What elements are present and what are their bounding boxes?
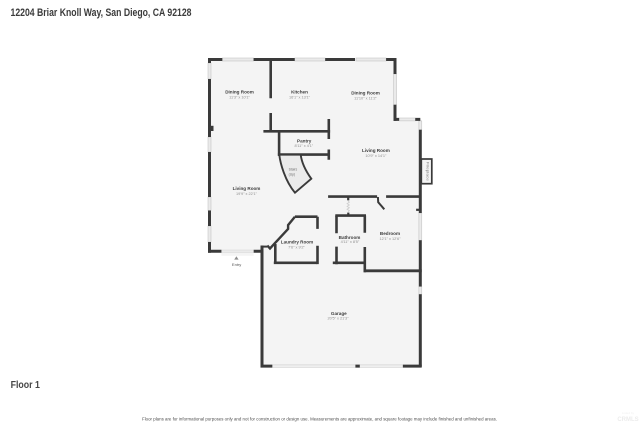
svg-text:11'10" x 11'2": 11'10" x 11'2" [354, 96, 377, 100]
svg-text:11'3" x 10'1": 11'3" x 10'1" [229, 95, 250, 99]
svg-text:Kitchen: Kitchen [291, 90, 308, 95]
svg-text:Laundry Room: Laundry Room [281, 240, 313, 245]
svg-text:Dining Room: Dining Room [351, 91, 380, 96]
svg-text:Floor plans are for informatio: Floor plans are for informational purpos… [142, 417, 497, 422]
svg-text:Fireplace: Fireplace [426, 162, 430, 181]
svg-text:Bedroom: Bedroom [380, 231, 400, 236]
svg-text:19'9" x 22'1": 19'9" x 22'1" [236, 192, 258, 196]
svg-text:Pantry: Pantry [297, 138, 312, 143]
svg-text:Stairs: Stairs [289, 168, 298, 172]
svg-text:8'11" x 4'1": 8'11" x 4'1" [294, 144, 313, 148]
svg-text:Living Room: Living Room [233, 186, 261, 191]
svg-text:Listed by: Listed by [622, 411, 635, 415]
svg-text:Dining Room: Dining Room [225, 90, 254, 95]
svg-text:(Up): (Up) [289, 173, 296, 177]
svg-text:12'1" x 12'6": 12'1" x 12'6" [379, 237, 401, 241]
svg-text:10'9" x 14'1": 10'9" x 14'1" [365, 154, 387, 158]
svg-text:7'6" x 9'2": 7'6" x 9'2" [288, 245, 305, 249]
svg-text:Living Room: Living Room [362, 148, 390, 153]
svg-text:Bathroom: Bathroom [339, 235, 361, 240]
svg-text:12204 Briar Knoll Way, San Die: 12204 Briar Knoll Way, San Diego, CA 921… [11, 7, 192, 19]
svg-text:Floor 1: Floor 1 [11, 380, 41, 391]
svg-text:16'1" x 13'1": 16'1" x 13'1" [289, 95, 311, 99]
svg-text:Entry: Entry [232, 262, 241, 267]
svg-text:Garage: Garage [331, 311, 347, 316]
svg-text:4'11" x 8'5": 4'11" x 8'5" [341, 240, 360, 244]
svg-text:CRMLS: CRMLS [617, 417, 638, 423]
svg-text:20'5" x 21'3": 20'5" x 21'3" [327, 317, 349, 321]
